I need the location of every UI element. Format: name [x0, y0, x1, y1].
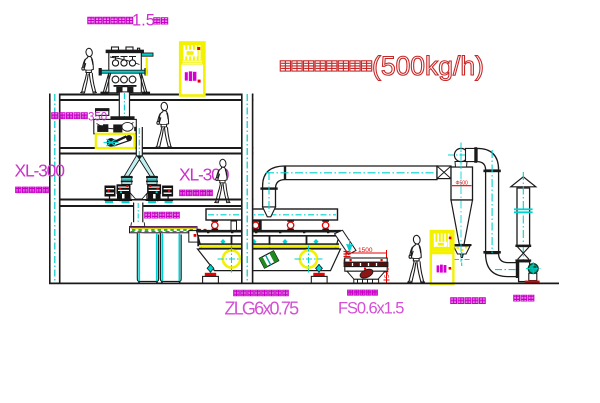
svg-text:XL-300: XL-300 [15, 161, 66, 181]
svg-text:ZLG6x0.75: ZLG6x0.75 [225, 299, 300, 319]
svg-text:FS0.6x1.5: FS0.6x1.5 [338, 300, 404, 318]
svg-text:350: 350 [88, 112, 107, 124]
svg-text:1500: 1500 [358, 247, 373, 254]
svg-text:(500kg/h): (500kg/h) [372, 51, 484, 81]
svg-text:1.5: 1.5 [132, 12, 155, 30]
svg-text:Φ500: Φ500 [456, 181, 469, 187]
